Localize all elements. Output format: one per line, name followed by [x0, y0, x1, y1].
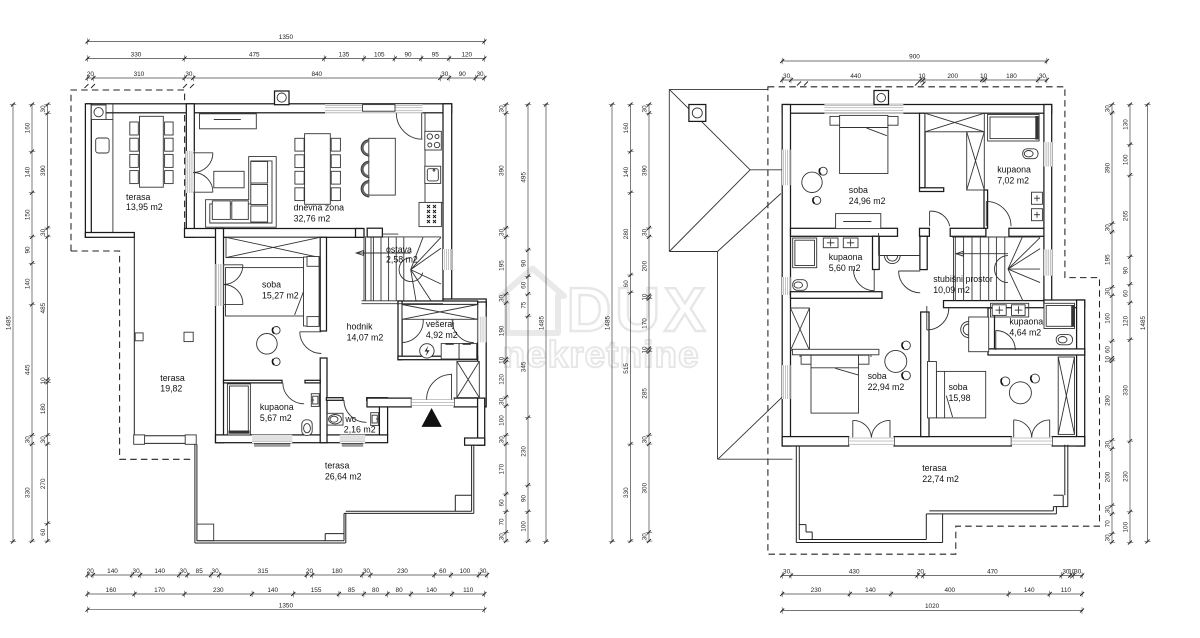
svg-text:1485: 1485 [1140, 315, 1147, 330]
svg-text:wc: wc [344, 414, 356, 424]
svg-text:445: 445 [24, 364, 31, 375]
svg-text:840: 840 [311, 71, 322, 78]
svg-text:200: 200 [641, 260, 648, 271]
svg-text:190: 190 [498, 325, 505, 336]
svg-text:200: 200 [1104, 471, 1111, 482]
svg-text:soba: soba [262, 280, 281, 290]
svg-text:30: 30 [24, 436, 31, 444]
svg-text:22,74 m2: 22,74 m2 [922, 474, 959, 484]
svg-text:10,09 m2: 10,09 m2 [933, 285, 970, 295]
svg-text:30: 30 [363, 568, 371, 575]
svg-text:kupaona: kupaona [1009, 317, 1043, 327]
svg-text:1350: 1350 [279, 602, 294, 609]
svg-text:90: 90 [520, 259, 527, 267]
svg-text:390: 390 [498, 165, 505, 176]
svg-text:4,64 m2: 4,64 m2 [1009, 328, 1041, 338]
svg-text:30: 30 [641, 533, 648, 541]
svg-text:285: 285 [641, 388, 648, 399]
svg-text:135: 135 [339, 51, 350, 58]
svg-text:30: 30 [641, 436, 648, 444]
svg-text:140: 140 [24, 278, 31, 289]
svg-text:155: 155 [311, 587, 322, 594]
svg-text:140: 140 [24, 166, 31, 177]
svg-text:110: 110 [1061, 587, 1072, 594]
svg-text:terasa: terasa [160, 373, 185, 383]
svg-text:170: 170 [154, 587, 165, 594]
svg-text:515: 515 [623, 363, 630, 374]
svg-text:30: 30 [1039, 73, 1047, 80]
svg-text:soba: soba [949, 382, 968, 392]
svg-text:140: 140 [865, 587, 876, 594]
svg-text:5,60 m2: 5,60 m2 [829, 263, 861, 273]
svg-text:30: 30 [498, 436, 505, 444]
svg-text:390: 390 [641, 165, 648, 176]
svg-text:30: 30 [1104, 534, 1111, 542]
svg-text:70: 70 [498, 518, 505, 526]
svg-text:400: 400 [944, 587, 955, 594]
svg-text:60: 60 [623, 280, 630, 288]
svg-text:30: 30 [1104, 288, 1111, 296]
svg-text:60: 60 [1104, 346, 1111, 354]
svg-text:105: 105 [374, 51, 385, 58]
svg-text:180: 180 [1006, 73, 1017, 80]
svg-text:15,98: 15,98 [949, 393, 971, 403]
svg-text:kupaona: kupaona [997, 165, 1031, 175]
svg-text:110: 110 [463, 587, 474, 594]
svg-text:315: 315 [258, 568, 269, 575]
svg-text:26,64 m2: 26,64 m2 [325, 472, 362, 482]
svg-text:30: 30 [180, 568, 188, 575]
svg-text:75: 75 [520, 301, 527, 309]
svg-text:7,02 m2: 7,02 m2 [997, 176, 1029, 186]
svg-text:160: 160 [1104, 313, 1111, 324]
svg-text:180: 180 [40, 403, 47, 414]
svg-text:30: 30 [498, 397, 505, 405]
svg-text:90: 90 [24, 246, 31, 254]
svg-text:stubišni prostor: stubišni prostor [933, 274, 993, 284]
svg-text:ostava: ostava [386, 245, 412, 255]
svg-text:30: 30 [40, 228, 47, 236]
svg-text:30: 30 [479, 568, 487, 575]
svg-text:95: 95 [432, 51, 440, 58]
svg-text:230: 230 [213, 587, 224, 594]
svg-text:265: 265 [1122, 210, 1129, 221]
svg-text:160: 160 [623, 122, 630, 133]
svg-text:kupaona: kupaona [829, 252, 863, 262]
svg-text:100: 100 [498, 415, 505, 426]
svg-text:14,07 m2: 14,07 m2 [347, 333, 384, 343]
svg-text:10: 10 [498, 356, 505, 364]
svg-text:130: 130 [1122, 119, 1129, 130]
svg-text:330: 330 [1122, 385, 1129, 396]
svg-text:nekretnine: nekretnine [502, 334, 699, 375]
svg-text:30: 30 [1104, 105, 1111, 113]
svg-text:terasa: terasa [922, 463, 947, 473]
svg-text:30: 30 [212, 568, 220, 575]
svg-text:70: 70 [1104, 520, 1111, 528]
svg-text:60: 60 [439, 568, 447, 575]
svg-text:140: 140 [623, 166, 630, 177]
svg-text:30: 30 [1104, 506, 1111, 514]
svg-text:hodnik: hodnik [347, 322, 374, 332]
svg-text:90: 90 [1122, 267, 1129, 275]
svg-text:30: 30 [783, 568, 791, 575]
svg-text:30: 30 [783, 73, 791, 80]
svg-text:30: 30 [1104, 224, 1111, 232]
svg-text:terasa: terasa [126, 192, 151, 202]
svg-text:30: 30 [1074, 568, 1082, 575]
svg-text:180: 180 [332, 568, 343, 575]
svg-text:30: 30 [641, 228, 648, 236]
svg-text:100: 100 [520, 521, 527, 532]
svg-text:900: 900 [909, 54, 920, 61]
svg-text:150: 150 [24, 209, 31, 220]
svg-text:90: 90 [459, 71, 467, 78]
svg-text:90: 90 [404, 51, 412, 58]
svg-text:280: 280 [623, 228, 630, 239]
svg-text:60: 60 [520, 281, 527, 289]
svg-text:soba: soba [868, 371, 887, 381]
svg-text:soba: soba [849, 185, 868, 195]
svg-text:terasa: terasa [325, 461, 350, 471]
svg-text:270: 270 [40, 478, 47, 489]
svg-text:280: 280 [1104, 395, 1111, 406]
svg-text:1485: 1485 [538, 315, 545, 330]
svg-text:390: 390 [40, 165, 47, 176]
svg-text:80: 80 [372, 587, 380, 594]
svg-text:200: 200 [947, 73, 958, 80]
svg-text:30: 30 [498, 105, 505, 113]
svg-text:140: 140 [107, 568, 118, 575]
svg-text:160: 160 [106, 587, 117, 594]
svg-text:100: 100 [460, 568, 471, 575]
svg-text:80: 80 [396, 587, 404, 594]
svg-text:430: 430 [849, 568, 860, 575]
svg-text:485: 485 [40, 302, 47, 313]
svg-text:495: 495 [520, 172, 527, 183]
svg-text:2,16 m2: 2,16 m2 [344, 425, 376, 435]
svg-text:120: 120 [498, 374, 505, 385]
svg-text:195: 195 [1104, 254, 1111, 265]
svg-text:345: 345 [520, 361, 527, 372]
svg-text:30: 30 [185, 71, 193, 78]
svg-text:vešeraj: vešeraj [426, 319, 454, 329]
svg-text:230: 230 [520, 446, 527, 457]
svg-text:30: 30 [40, 105, 47, 113]
svg-text:475: 475 [249, 51, 260, 58]
svg-text:140: 140 [154, 568, 165, 575]
svg-text:1350: 1350 [279, 34, 294, 41]
svg-text:10: 10 [641, 346, 648, 354]
svg-text:60: 60 [1122, 290, 1129, 298]
svg-text:1485: 1485 [5, 315, 12, 330]
svg-text:15,27 m2: 15,27 m2 [262, 291, 299, 301]
svg-text:140: 140 [426, 587, 437, 594]
svg-text:230: 230 [811, 587, 822, 594]
svg-text:390: 390 [1104, 162, 1111, 173]
svg-text:30: 30 [1104, 441, 1111, 449]
svg-text:85: 85 [348, 587, 356, 594]
svg-text:dnevna zona: dnevna zona [294, 203, 344, 213]
svg-text:230: 230 [397, 568, 408, 575]
svg-text:2,58 m2: 2,58 m2 [386, 255, 418, 265]
svg-text:330: 330 [24, 487, 31, 498]
svg-text:30: 30 [133, 568, 141, 575]
svg-text:140: 140 [1024, 587, 1035, 594]
svg-text:30: 30 [476, 71, 484, 78]
svg-text:19,82: 19,82 [160, 384, 182, 394]
svg-text:100: 100 [1122, 521, 1129, 532]
svg-text:330: 330 [623, 487, 630, 498]
svg-text:30: 30 [641, 105, 648, 113]
svg-text:170: 170 [498, 463, 505, 474]
svg-text:60: 60 [498, 499, 505, 507]
svg-text:170: 170 [641, 318, 648, 329]
svg-text:140: 140 [267, 587, 278, 594]
svg-text:230: 230 [1122, 471, 1129, 482]
svg-text:22,94 m2: 22,94 m2 [868, 382, 905, 392]
svg-text:kupaona: kupaona [260, 402, 294, 412]
svg-text:60: 60 [40, 528, 47, 536]
svg-text:470: 470 [987, 568, 998, 575]
svg-text:90: 90 [520, 495, 527, 503]
svg-text:30: 30 [498, 533, 505, 541]
svg-text:30: 30 [498, 228, 505, 236]
svg-text:120: 120 [1122, 315, 1129, 326]
svg-text:30: 30 [498, 295, 505, 303]
svg-text:85: 85 [196, 568, 204, 575]
svg-text:1485: 1485 [604, 315, 611, 330]
svg-text:4,92 m2: 4,92 m2 [426, 330, 458, 340]
svg-text:120: 120 [461, 51, 472, 58]
svg-text:300: 300 [641, 482, 648, 493]
svg-text:24,96 m2: 24,96 m2 [849, 196, 886, 206]
svg-text:330: 330 [131, 51, 142, 58]
svg-text:100: 100 [1122, 154, 1129, 165]
svg-text:30: 30 [40, 436, 47, 444]
svg-text:1020: 1020 [925, 603, 940, 610]
svg-text:440: 440 [850, 73, 861, 80]
svg-text:30: 30 [441, 71, 449, 78]
svg-text:13,95 m2: 13,95 m2 [126, 202, 163, 212]
svg-text:5,67 m2: 5,67 m2 [260, 413, 292, 423]
svg-text:32,76 m2: 32,76 m2 [294, 214, 331, 224]
svg-text:160: 160 [24, 122, 31, 133]
svg-text:310: 310 [134, 71, 145, 78]
svg-text:195: 195 [498, 260, 505, 271]
